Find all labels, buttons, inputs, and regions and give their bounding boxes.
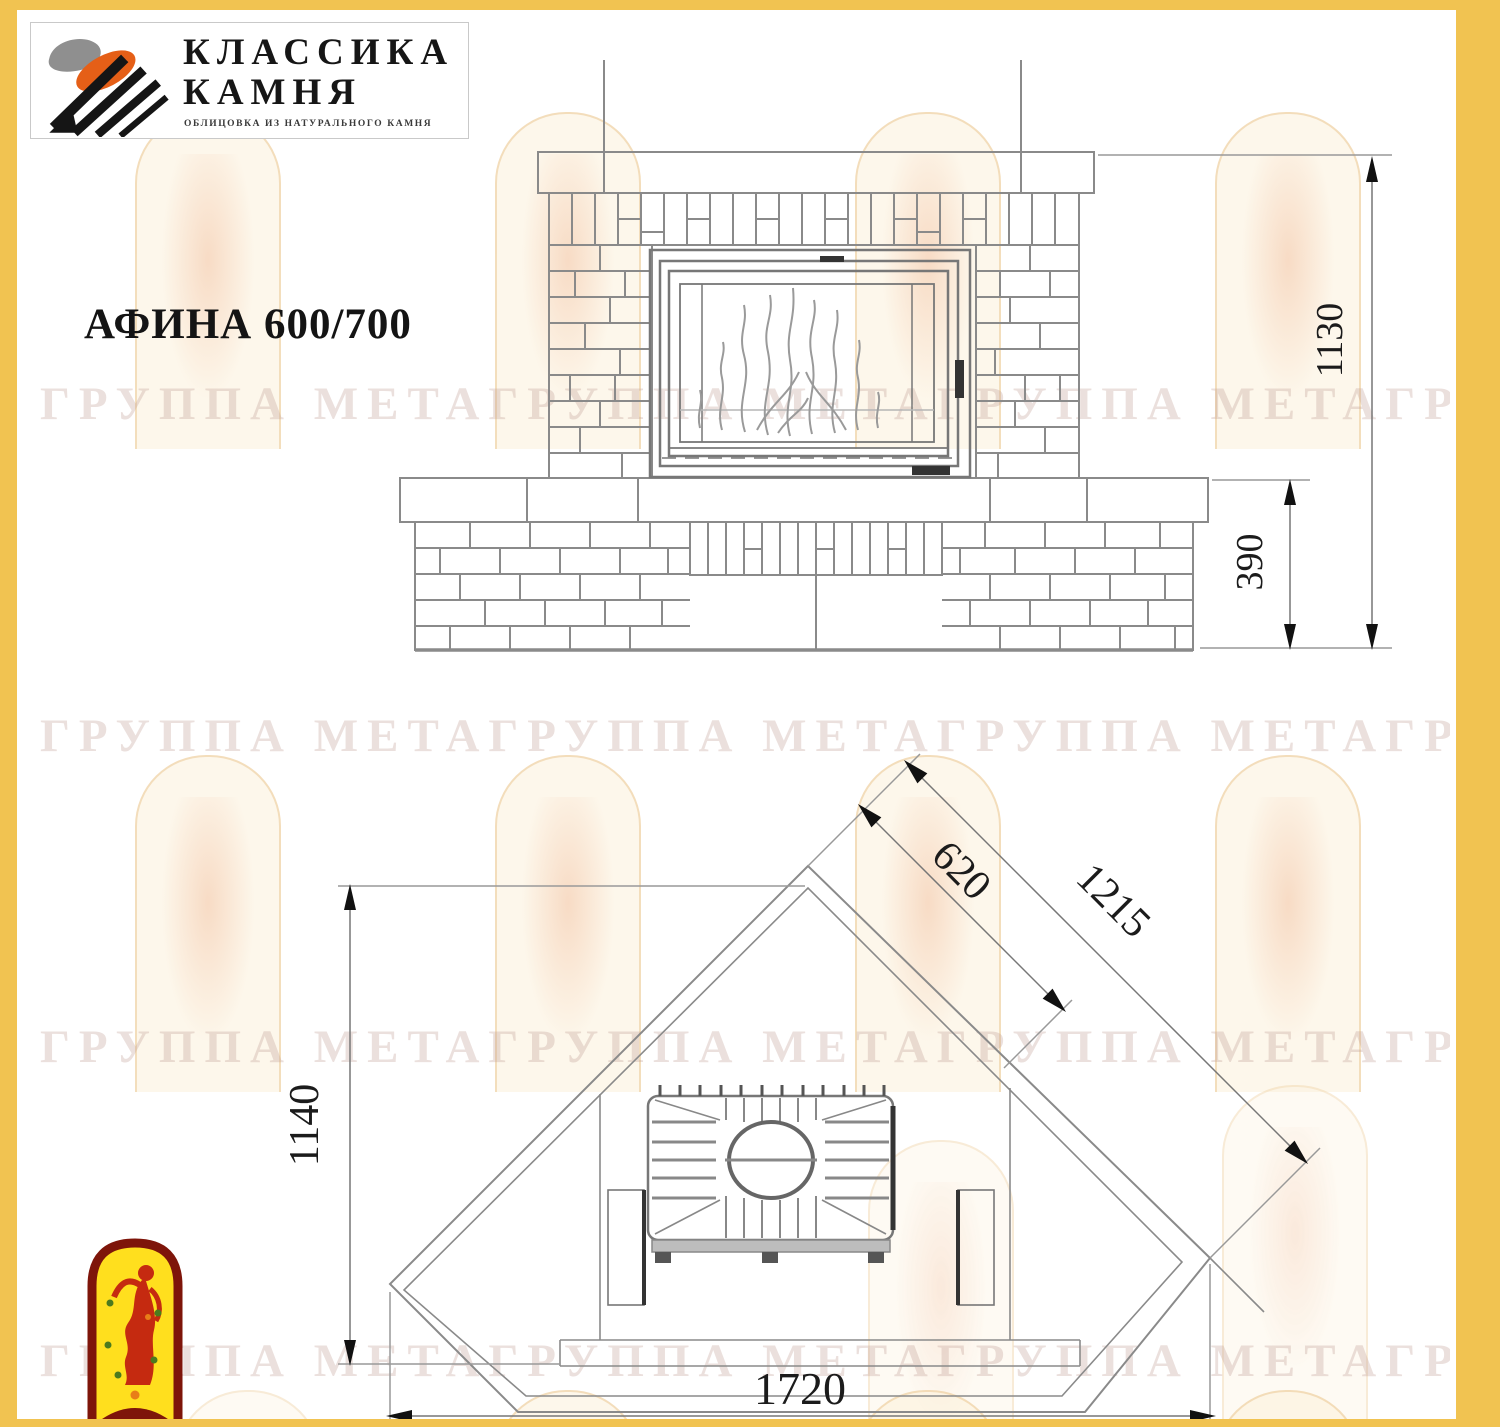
plan-view-drawing: 1140 1720 620 1215	[280, 715, 1400, 1427]
firebox-plan	[608, 1085, 994, 1305]
firebox-brand-plate	[912, 466, 950, 475]
frame-border-bottom	[0, 1419, 1500, 1427]
frame-border-left	[0, 0, 17, 1427]
plan-dimension-arrows	[344, 755, 1313, 1422]
logo-graphic	[39, 27, 179, 137]
plan-extension-lines	[338, 754, 1320, 1424]
front-elevation-drawing: 1130 390	[380, 40, 1410, 670]
mascot-logo	[80, 1225, 190, 1427]
front-dimension-arrows	[1284, 156, 1378, 650]
firebox-flames	[699, 288, 879, 436]
dim-face-diagonal: 1215	[1067, 855, 1159, 947]
dim-base-height: 390	[1229, 534, 1271, 591]
logo-title-line2: КАМНЯ	[183, 71, 362, 114]
dim-depth: 1140	[282, 1084, 328, 1166]
plan-footprint	[390, 866, 1264, 1412]
page: ГРУППА МЕТАГРУППА МЕТАГРУППА МЕТАГРУППА …	[0, 0, 1500, 1427]
logo-tagline: ОБЛИЦОВКА ИЗ НАТУРАЛЬНОГО КАМНЯ	[184, 119, 432, 129]
firebox-vent-latch	[820, 256, 844, 262]
logo-title-line1: КЛАССИКА	[183, 31, 454, 74]
page-title: АФИНА 600/700	[84, 300, 412, 349]
dim-height-total: 1130	[1309, 303, 1351, 378]
front-structure	[400, 60, 1208, 650]
logo-box: КЛАССИКА КАМНЯ ОБЛИЦОВКА ИЗ НАТУРАЛЬНОГО…	[30, 22, 469, 139]
firebox-handle	[955, 360, 964, 398]
firebox-front	[650, 250, 970, 477]
dim-front-width: 1720	[754, 1363, 846, 1414]
frame-border-top	[0, 0, 1500, 10]
frame-border-right	[1456, 0, 1500, 1427]
